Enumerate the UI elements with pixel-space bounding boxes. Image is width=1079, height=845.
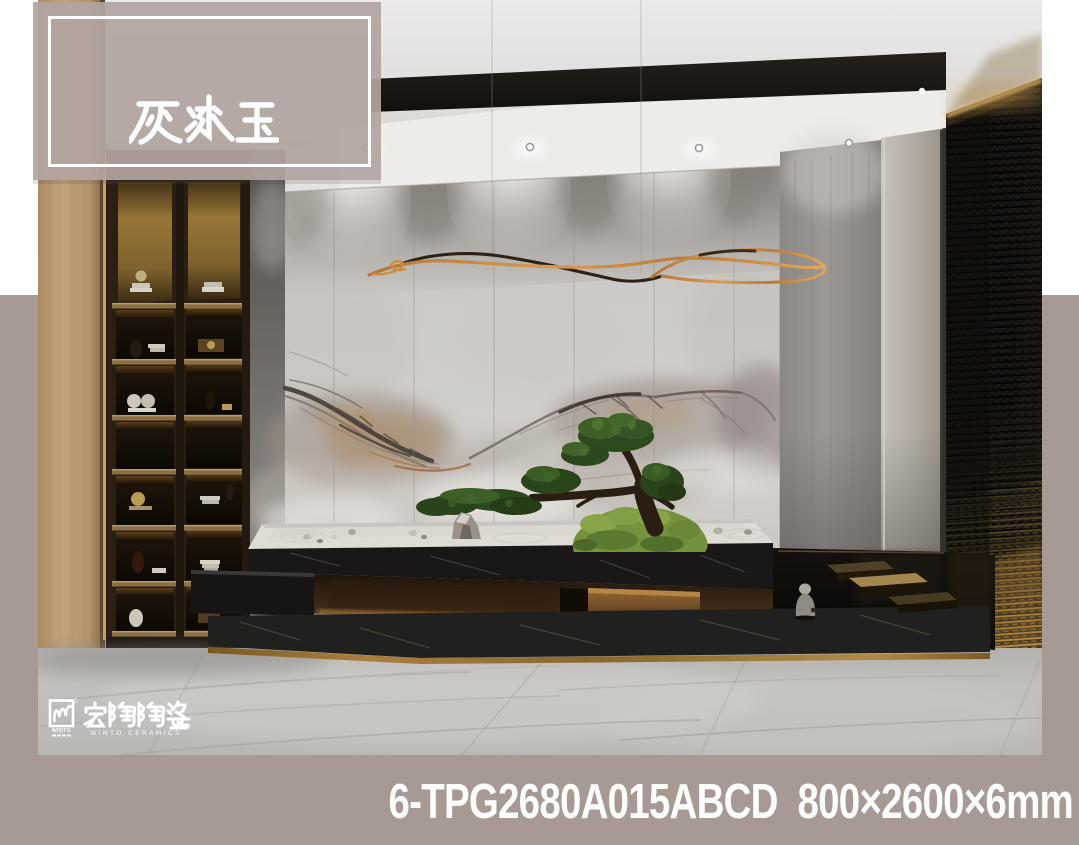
- svg-text:WINTO: WINTO: [52, 728, 71, 734]
- svg-text:WINTO CERAMICS: WINTO CERAMICS: [90, 730, 182, 737]
